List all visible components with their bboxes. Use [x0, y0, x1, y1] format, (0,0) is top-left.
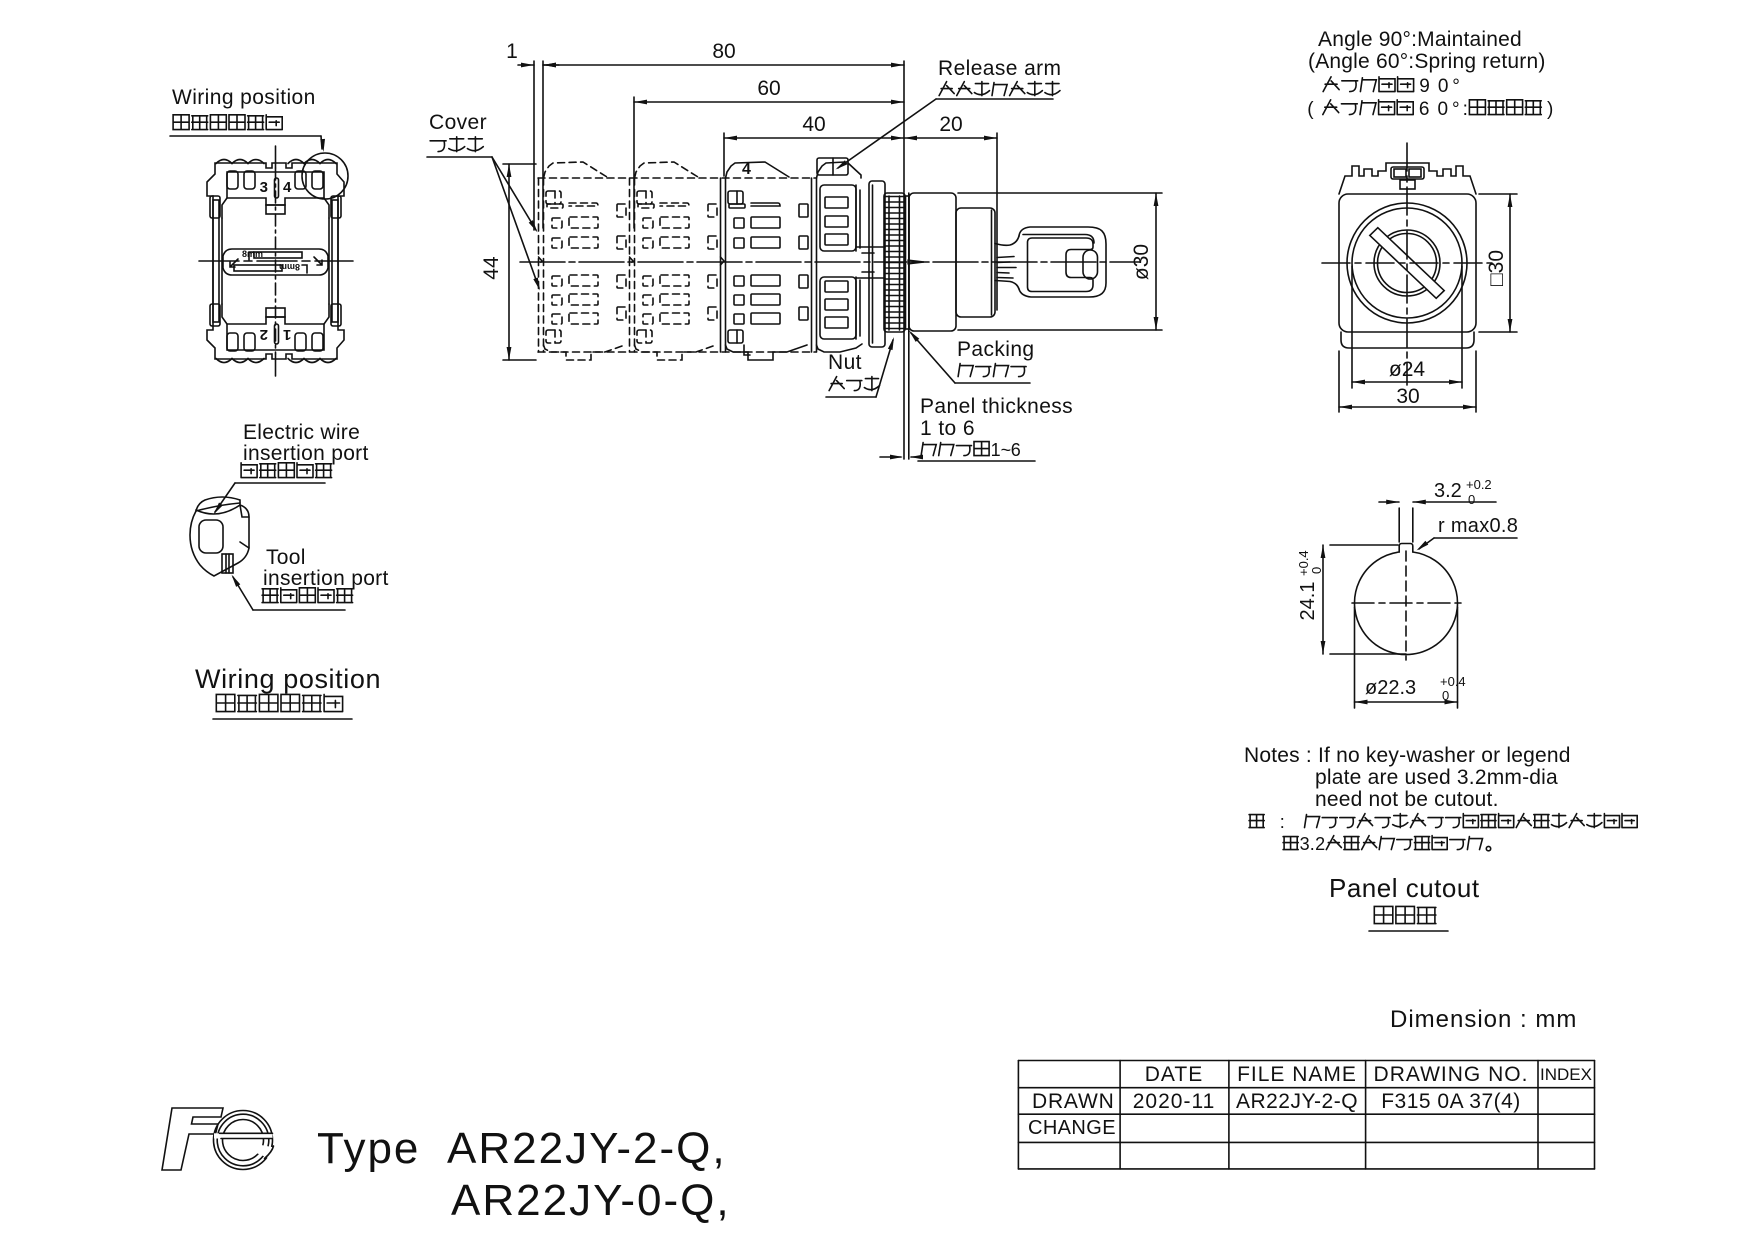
svg-text:3.2: 3.2	[1434, 480, 1462, 502]
svg-text:2: 2	[1315, 834, 1325, 854]
svg-text:0: 0	[1438, 76, 1449, 97]
svg-text:.: .	[1310, 834, 1315, 854]
svg-text:Wiring position: Wiring position	[195, 664, 381, 694]
svg-text:2: 2	[260, 326, 268, 343]
svg-text:insertion port: insertion port	[243, 442, 369, 465]
svg-text:Nut: Nut	[828, 351, 862, 374]
svg-text:0: 0	[1442, 688, 1449, 703]
svg-text:DRAWING NO.: DRAWING NO.	[1374, 1063, 1529, 1086]
svg-text:°: °	[1452, 99, 1460, 120]
svg-text:30: 30	[1396, 385, 1419, 408]
svg-text:80: 80	[712, 40, 735, 63]
svg-text:AR22JY-2-Q,: AR22JY-2-Q,	[447, 1124, 727, 1173]
svg-text:Notes : If no key-washer or le: Notes : If no key-washer or legend	[1244, 744, 1571, 767]
svg-text:24.1: 24.1	[1297, 582, 1319, 621]
svg-text:°: °	[1452, 76, 1460, 97]
svg-text:3: 3	[260, 179, 268, 196]
svg-text:20: 20	[939, 113, 962, 136]
svg-text:Tool: Tool	[266, 546, 306, 569]
svg-text:+0.4: +0.4	[1440, 674, 1466, 689]
svg-text:Release arm: Release arm	[938, 57, 1061, 80]
svg-text::: :	[1463, 99, 1468, 120]
svg-text:4: 4	[742, 161, 751, 178]
svg-text:Angle 90°:Maintained: Angle 90°:Maintained	[1318, 28, 1522, 51]
svg-text:1: 1	[283, 326, 291, 343]
svg-text:ø24: ø24	[1389, 358, 1426, 381]
svg-text:1: 1	[506, 40, 518, 63]
svg-text:Cover: Cover	[429, 111, 487, 134]
svg-text:8mm: 8mm	[279, 262, 300, 272]
svg-text:INDEX: INDEX	[1540, 1065, 1592, 1084]
svg-text:Panel cutout: Panel cutout	[1329, 873, 1480, 903]
svg-text:Wiring position: Wiring position	[172, 86, 316, 109]
svg-text::: :	[1280, 812, 1285, 832]
svg-text:insertion port: insertion port	[263, 567, 389, 590]
svg-text:r max0.8: r max0.8	[1438, 515, 1518, 537]
svg-text:□30: □30	[1485, 250, 1508, 286]
svg-text:2020-11: 2020-11	[1133, 1090, 1216, 1113]
svg-text:(Angle 60°:Spring return): (Angle 60°:Spring return)	[1308, 50, 1546, 73]
svg-text:60: 60	[757, 77, 780, 100]
svg-text:Packing: Packing	[957, 338, 1035, 361]
svg-text:AR22JY-2-Q: AR22JY-2-Q	[1236, 1090, 1358, 1113]
svg-text:6: 6	[1419, 99, 1430, 120]
svg-text:0: 0	[1309, 567, 1324, 574]
svg-text:9: 9	[1419, 76, 1430, 97]
svg-text:0: 0	[1438, 99, 1449, 120]
svg-text:DRAWN: DRAWN	[1032, 1090, 1115, 1113]
svg-text:FILE NAME: FILE NAME	[1237, 1063, 1357, 1086]
svg-text:need not be cutout.: need not be cutout.	[1315, 788, 1499, 811]
svg-text:Electric wire: Electric wire	[243, 421, 360, 444]
svg-text:40: 40	[802, 113, 825, 136]
svg-text:): )	[1547, 99, 1553, 120]
svg-text:F315 0A 37(4): F315 0A 37(4)	[1381, 1090, 1521, 1113]
svg-text:1 to 6: 1 to 6	[920, 417, 975, 440]
svg-text:AR22JY-0-Q,: AR22JY-0-Q,	[451, 1176, 731, 1225]
svg-text:8mm: 8mm	[242, 249, 263, 259]
svg-text:3: 3	[1300, 834, 1310, 854]
svg-text:DATE: DATE	[1145, 1063, 1203, 1086]
svg-text:CHANGE: CHANGE	[1028, 1117, 1116, 1139]
svg-text:44: 44	[480, 256, 503, 280]
svg-text:0: 0	[1468, 492, 1475, 507]
svg-text:+0.2: +0.2	[1466, 477, 1492, 492]
svg-text:ø22.3: ø22.3	[1365, 677, 1416, 699]
svg-text:Type: Type	[317, 1124, 420, 1173]
svg-text:Panel thickness: Panel thickness	[920, 395, 1073, 418]
svg-text:Dimension : mm: Dimension : mm	[1390, 1006, 1577, 1033]
svg-text:1: 1	[991, 440, 1001, 460]
svg-text:6: 6	[1011, 440, 1021, 460]
svg-text:(: (	[1307, 99, 1314, 120]
svg-text:4: 4	[283, 179, 292, 196]
svg-text:plate are used 3.2mm-dia: plate are used 3.2mm-dia	[1315, 766, 1558, 789]
svg-text:~: ~	[1001, 440, 1012, 460]
